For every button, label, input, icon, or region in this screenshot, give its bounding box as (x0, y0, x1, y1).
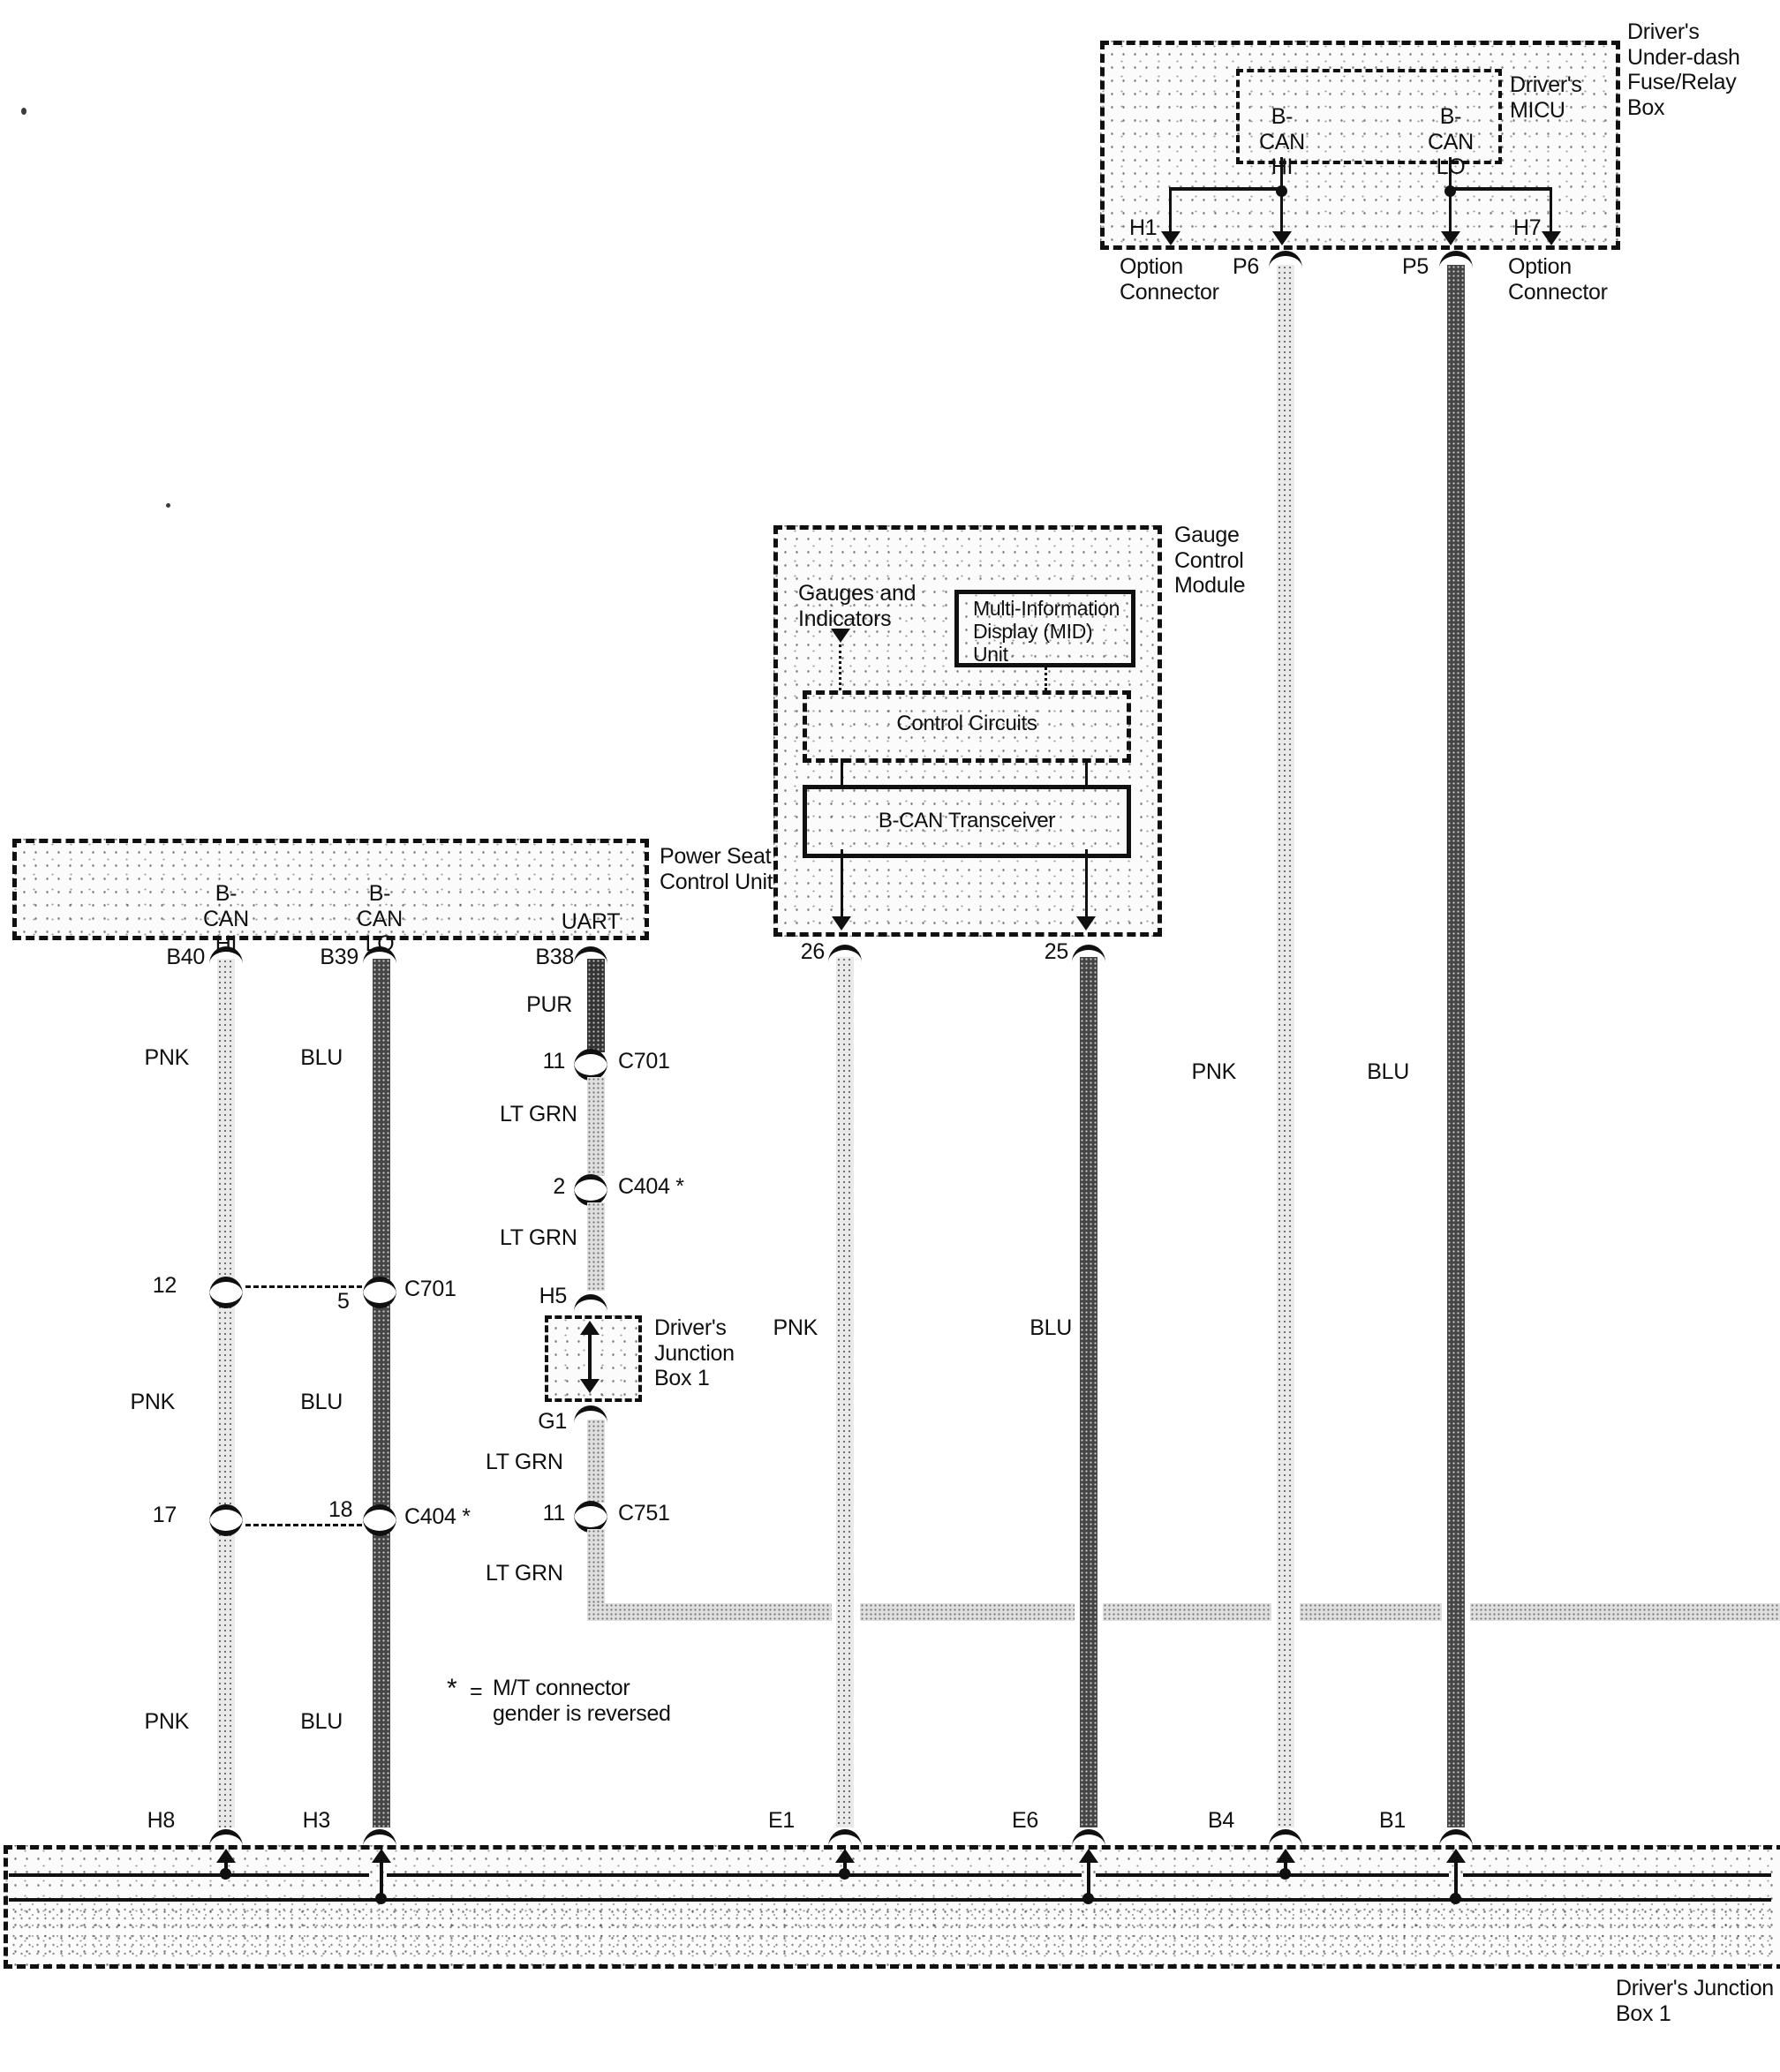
wire-color-ltgrn-2: LT GRN (500, 1225, 577, 1251)
wire-color-blu-3: BLU (291, 1709, 343, 1735)
wire-color-blu-b1: BLU (1361, 1059, 1409, 1085)
junction-box-band-title: Driver's Junction Box 1 (1616, 1976, 1774, 2026)
junction-dot-e1 (839, 1868, 850, 1880)
c404-pair-pin-left: 17 (145, 1503, 177, 1528)
wire-color-pur: PUR (524, 992, 572, 1018)
note-equals: = (470, 1679, 482, 1705)
pin-26: 26 (791, 939, 825, 965)
wire-ltgrn-horizontal-seg5 (1470, 1603, 1780, 1621)
wire-ltgrn-horizontal-seg2 (860, 1603, 1075, 1621)
bcan-transceiver-label: B-CAN Transceiver (803, 809, 1131, 833)
arrow-down-h7 (1542, 231, 1561, 245)
arrow-up-e1 (835, 1849, 855, 1863)
note-asterisk: * (447, 1674, 456, 1704)
micu-h7-branch (1451, 187, 1551, 191)
micu-h7-wire (1550, 187, 1552, 235)
arrow-up-b1 (1446, 1849, 1466, 1863)
micu-h1-branch (1171, 187, 1282, 191)
wire-color-pnk-1: PNK (138, 1045, 189, 1071)
wire-blu-b39-seg1 (373, 959, 390, 1280)
pin-h1: H1 (1129, 215, 1157, 241)
mid-unit-label: Multi-Information Display (MID) Unit (973, 597, 1120, 667)
wiring-diagram-page: Driver's Under-dash Fuse/Relay Box Drive… (0, 0, 1780, 2072)
pin-b4: B4 (1195, 1808, 1234, 1834)
arrow-up-h8 (216, 1849, 236, 1863)
note-text: M/T connector gender is reversed (493, 1676, 671, 1726)
c701-pair-pin-left: 12 (145, 1273, 177, 1299)
wire-color-blu-e6: BLU (1024, 1315, 1072, 1341)
connector-symbol-h3 (363, 1829, 396, 1847)
wire-ltgrn-horizontal-seg1 (587, 1603, 832, 1621)
c404-uart-name: C404 * (618, 1174, 684, 1200)
arrow-down-gauges (831, 629, 850, 643)
connector-symbol-c404-blu-bottom (363, 1518, 396, 1536)
connector-symbol-e6 (1072, 1829, 1105, 1847)
bus-line-hi-seg2 (387, 1873, 1082, 1877)
junction-dot-h3 (375, 1893, 387, 1904)
wire-color-ltgrn-1: LT GRN (500, 1102, 577, 1127)
arrow-down-junction-small (580, 1379, 600, 1393)
wire-color-pnk-e1: PNK (770, 1315, 818, 1341)
wire-color-blu-2: BLU (291, 1390, 343, 1415)
c701-uart-name: C701 (618, 1049, 670, 1074)
c751-pin: 11 (533, 1501, 565, 1526)
connector-symbol-h8 (209, 1829, 243, 1847)
junction-box-band-lower-fill (9, 1903, 1771, 1955)
arrow-down-p6 (1272, 231, 1292, 245)
arrow-down-pin25 (1076, 916, 1096, 931)
wire-pnk-26-e1 (836, 957, 854, 1827)
junction-dot-h8 (220, 1868, 231, 1880)
ps-uart-label: UART (560, 909, 622, 935)
c751-name: C751 (618, 1501, 670, 1526)
gauges-indicators-label: Gauges and Indicators (798, 581, 916, 631)
arrow-up-h3 (372, 1849, 391, 1863)
arrow-down-p5 (1441, 231, 1460, 245)
wire-ltgrn-seg1 (587, 1077, 605, 1176)
junction-box-small-title: Driver's Junction Box 1 (654, 1315, 735, 1391)
pin25-wire-stub (1085, 849, 1088, 920)
pin-p5: P5 (1402, 254, 1429, 280)
wire-pnk-p6-b4 (1277, 265, 1294, 1827)
gauges-dotted-link (839, 644, 841, 690)
connector-symbol-c701-blu-bottom (363, 1291, 396, 1308)
pin26-wire-stub (841, 849, 843, 920)
wire-color-ltgrn-3: LT GRN (486, 1450, 563, 1475)
bus-line-hi-seg3 (1096, 1873, 1449, 1877)
wire-pur-b38 (587, 959, 605, 1052)
wire-pnk-b40-seg1 (217, 959, 235, 1280)
wire-ltgrn-horizontal-seg3 (1103, 1603, 1271, 1621)
wire-ltgrn-seg2 (587, 1202, 605, 1291)
c404-pair-pin-right: 18 (328, 1497, 352, 1523)
c701-pair-pin-right: 5 (337, 1289, 350, 1315)
wire-color-ltgrn-4: LT GRN (486, 1561, 563, 1586)
bus-line-lo (9, 1898, 1771, 1902)
power-seat-title: Power Seat Control Unit (660, 844, 773, 894)
c404-uart-pin: 2 (533, 1174, 565, 1200)
wire-pnk-b40-seg2 (217, 1305, 235, 1508)
fuse-relay-box-title: Driver's Under-dash Fuse/Relay Box (1627, 19, 1740, 120)
pin-e6: E6 (999, 1808, 1038, 1834)
pin-b39: B39 (316, 945, 358, 970)
arrow-down-h1 (1161, 231, 1180, 245)
pin-b1: B1 (1367, 1808, 1406, 1834)
arrow-up-b4 (1276, 1849, 1295, 1863)
wire-ltgrn-seg3 (587, 1420, 605, 1503)
cc-transceiver-link-right (1085, 758, 1088, 787)
pin-h3: H3 (291, 1808, 330, 1834)
micu-h1-wire (1169, 187, 1172, 235)
arrow-down-pin26 (832, 916, 851, 931)
connector-symbol-c701-pnk-bottom (209, 1291, 243, 1308)
arrow-up-junction-small (580, 1321, 600, 1335)
junction-dot-b1 (1450, 1893, 1461, 1904)
power-seat-control-unit-box (12, 839, 649, 940)
scan-artifact-dot (166, 503, 170, 508)
connector-symbol-e1 (828, 1829, 862, 1847)
arrow-up-e6 (1079, 1849, 1098, 1863)
micu-title: Driver's MICU (1510, 72, 1582, 123)
wire-blu-b39-seg2 (373, 1305, 390, 1508)
wire-color-blu-1: BLU (291, 1045, 343, 1071)
wire-color-pnk-3: PNK (138, 1709, 189, 1735)
wire-blu-p5-b1 (1447, 265, 1465, 1827)
pin-g1: G1 (526, 1409, 567, 1435)
option-connector-right: Option Connector (1508, 254, 1608, 305)
connector-symbol-b1 (1439, 1829, 1473, 1847)
pin-e1: E1 (756, 1808, 795, 1834)
bus-line-hi-seg4 (1463, 1873, 1771, 1877)
c701-pair-name: C701 (404, 1277, 456, 1302)
connector-symbol-c404-pnk-bottom (209, 1518, 243, 1536)
c701-pair-tie-line (245, 1285, 362, 1288)
wire-blu-25-e6 (1080, 957, 1097, 1827)
pin-25: 25 (1035, 939, 1068, 965)
pin-b38: B38 (532, 945, 574, 970)
connector-symbol-h5 (574, 1294, 607, 1312)
wire-color-pnk-b4: PNK (1188, 1059, 1236, 1085)
wire-pnk-b40-seg3 (217, 1533, 235, 1827)
pin-p6: P6 (1233, 254, 1259, 280)
wire-ltgrn-horizontal-seg4 (1300, 1603, 1442, 1621)
bus-line-hi-seg1 (9, 1873, 369, 1877)
pin-b40: B40 (162, 945, 205, 970)
c404-pair-tie-line (245, 1524, 362, 1526)
junction-dot-b4 (1279, 1868, 1291, 1880)
mid-dotted-link (1045, 663, 1047, 690)
pin-h5: H5 (526, 1284, 567, 1309)
wire-blu-b39-seg3 (373, 1533, 390, 1827)
control-circuits-label: Control Circuits (803, 712, 1131, 735)
scan-artifact-dot (21, 108, 26, 115)
option-connector-left: Option Connector (1120, 254, 1219, 305)
connector-symbol-b4 (1269, 1829, 1302, 1847)
gauge-control-module-title: Gauge Control Module (1174, 523, 1245, 599)
wire-color-pnk-2: PNK (124, 1390, 175, 1415)
c404-pair-name: C404 * (404, 1504, 471, 1530)
c701-uart-pin: 11 (533, 1049, 565, 1074)
cc-transceiver-link-left (841, 758, 843, 787)
junction-dot-e6 (1082, 1893, 1094, 1904)
pin-h8: H8 (136, 1808, 175, 1834)
pin-h7: H7 (1513, 215, 1541, 241)
